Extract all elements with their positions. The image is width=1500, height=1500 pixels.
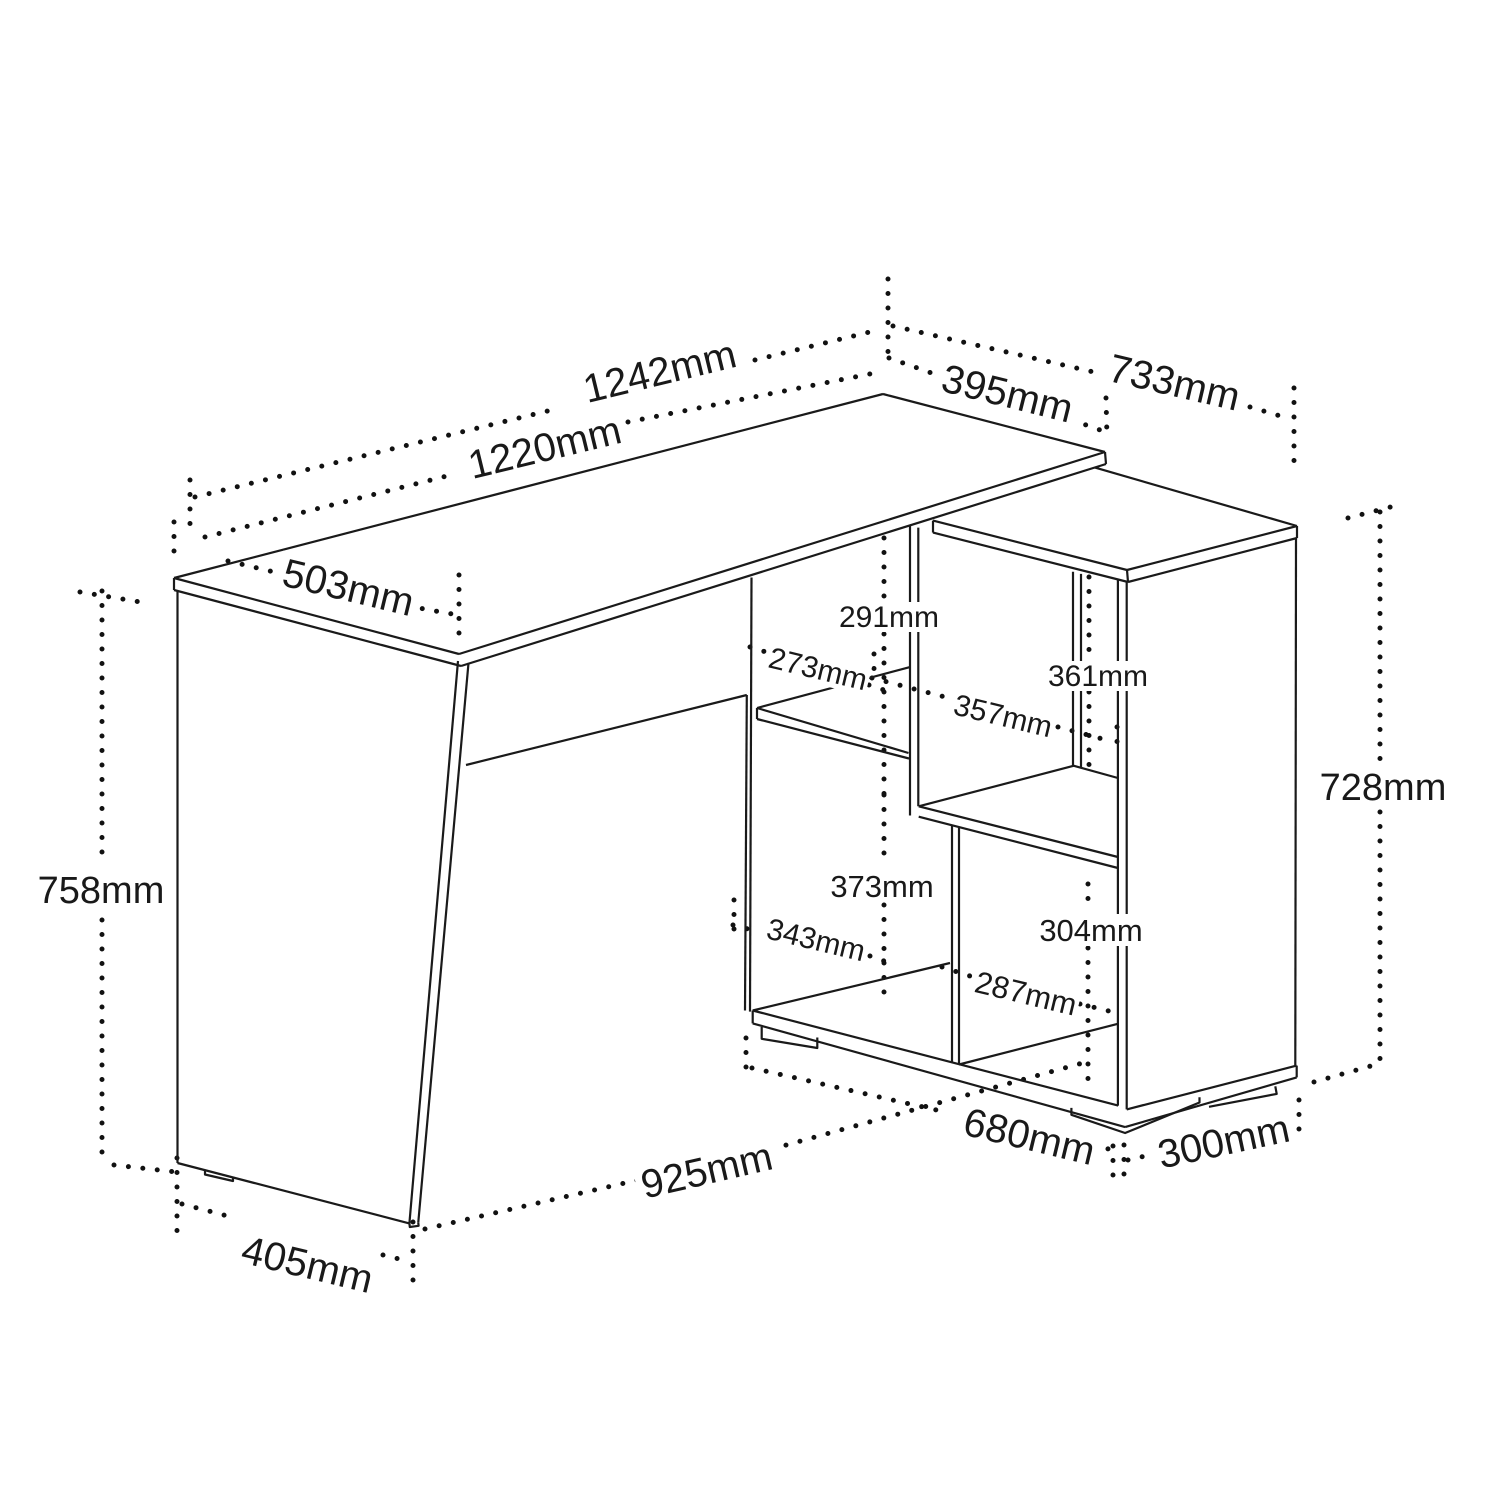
svg-text:361mm: 361mm [1048,660,1148,693]
svg-text:373mm: 373mm [830,869,933,904]
svg-text:758mm: 758mm [38,870,165,912]
svg-text:304mm: 304mm [1039,913,1142,948]
svg-text:291mm: 291mm [839,601,939,634]
svg-text:728mm: 728mm [1320,767,1447,809]
